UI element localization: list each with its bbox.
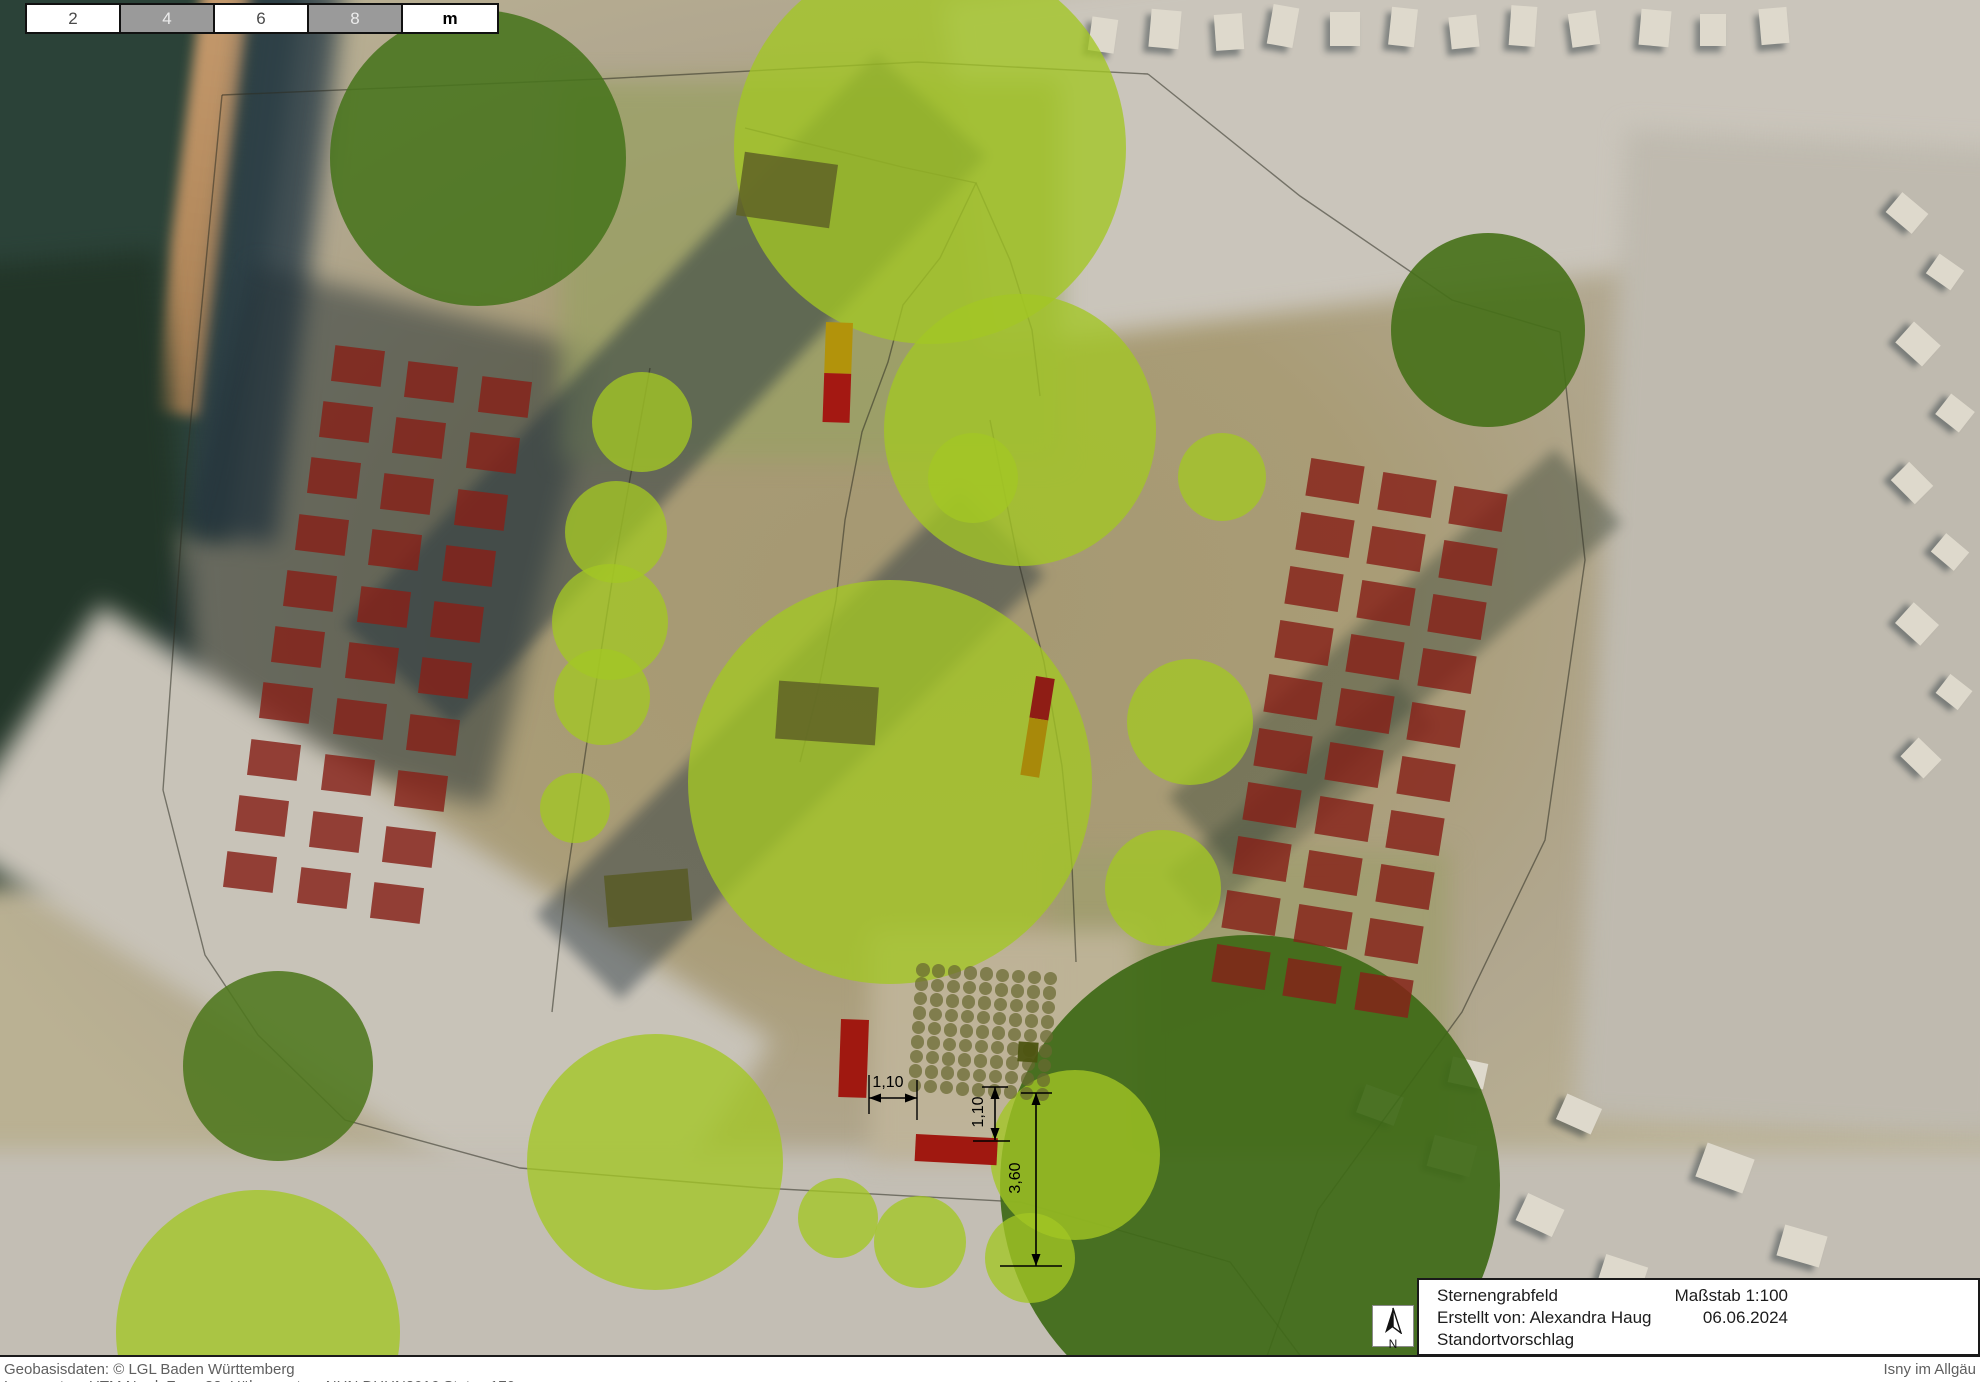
aerial-map: 1,10 1,10 3,60 2 4 6 8 m N Sternengrabfe… — [0, 0, 1980, 1357]
dimension-arrowhead — [991, 1087, 1000, 1099]
dimension-arrowhead — [991, 1128, 1000, 1140]
dimension-arrowhead — [905, 1094, 917, 1103]
coordinate-system-note: Lagesystem UTM Nord, Zone 32, Höhensyste… — [4, 1378, 515, 1382]
dimension-arrowhead — [869, 1094, 881, 1103]
dimension-label-110-horizontal: 1,10 — [872, 1074, 903, 1092]
north-needle-icon — [1373, 1306, 1413, 1334]
scale-segment-6: 6 — [215, 5, 309, 32]
north-arrow: N — [1372, 1305, 1414, 1347]
plan-scale: Maßstab 1:100 — [1675, 1286, 1788, 1306]
dimension-label-360: 3,60 — [1007, 1162, 1025, 1193]
geodata-attribution: Geobasisdaten: © LGL Baden Württemberg — [4, 1361, 295, 1378]
title-block: Sternengrabfeld Erstellt von: Alexandra … — [1417, 1278, 1980, 1356]
scale-segment-8: 8 — [309, 5, 403, 32]
scale-segment-4: 4 — [121, 5, 215, 32]
north-label: N — [1373, 1339, 1413, 1349]
dimension-arrowhead — [1032, 1254, 1041, 1266]
dimension-label-110-vertical: 1,10 — [970, 1096, 988, 1127]
plan-title: Sternengrabfeld — [1437, 1286, 1558, 1306]
plan-page: 1,10 1,10 3,60 2 4 6 8 m N Sternengrabfe… — [0, 0, 1980, 1382]
plan-subtitle: Standortvorschlag — [1437, 1330, 1574, 1350]
dimension-lines — [0, 0, 1980, 1357]
scale-segment-unit: m — [403, 5, 497, 32]
attribution-strip: Geobasisdaten: © LGL Baden Württemberg L… — [0, 1357, 1980, 1382]
plan-date: 06.06.2024 — [1703, 1308, 1788, 1328]
scale-bar: 2 4 6 8 m — [25, 3, 499, 34]
scale-segment-2: 2 — [27, 5, 121, 32]
region-label: Isny im Allgäu — [1883, 1361, 1976, 1378]
dimension-arrowhead — [1032, 1093, 1041, 1105]
plan-author: Erstellt von: Alexandra Haug — [1437, 1308, 1652, 1328]
